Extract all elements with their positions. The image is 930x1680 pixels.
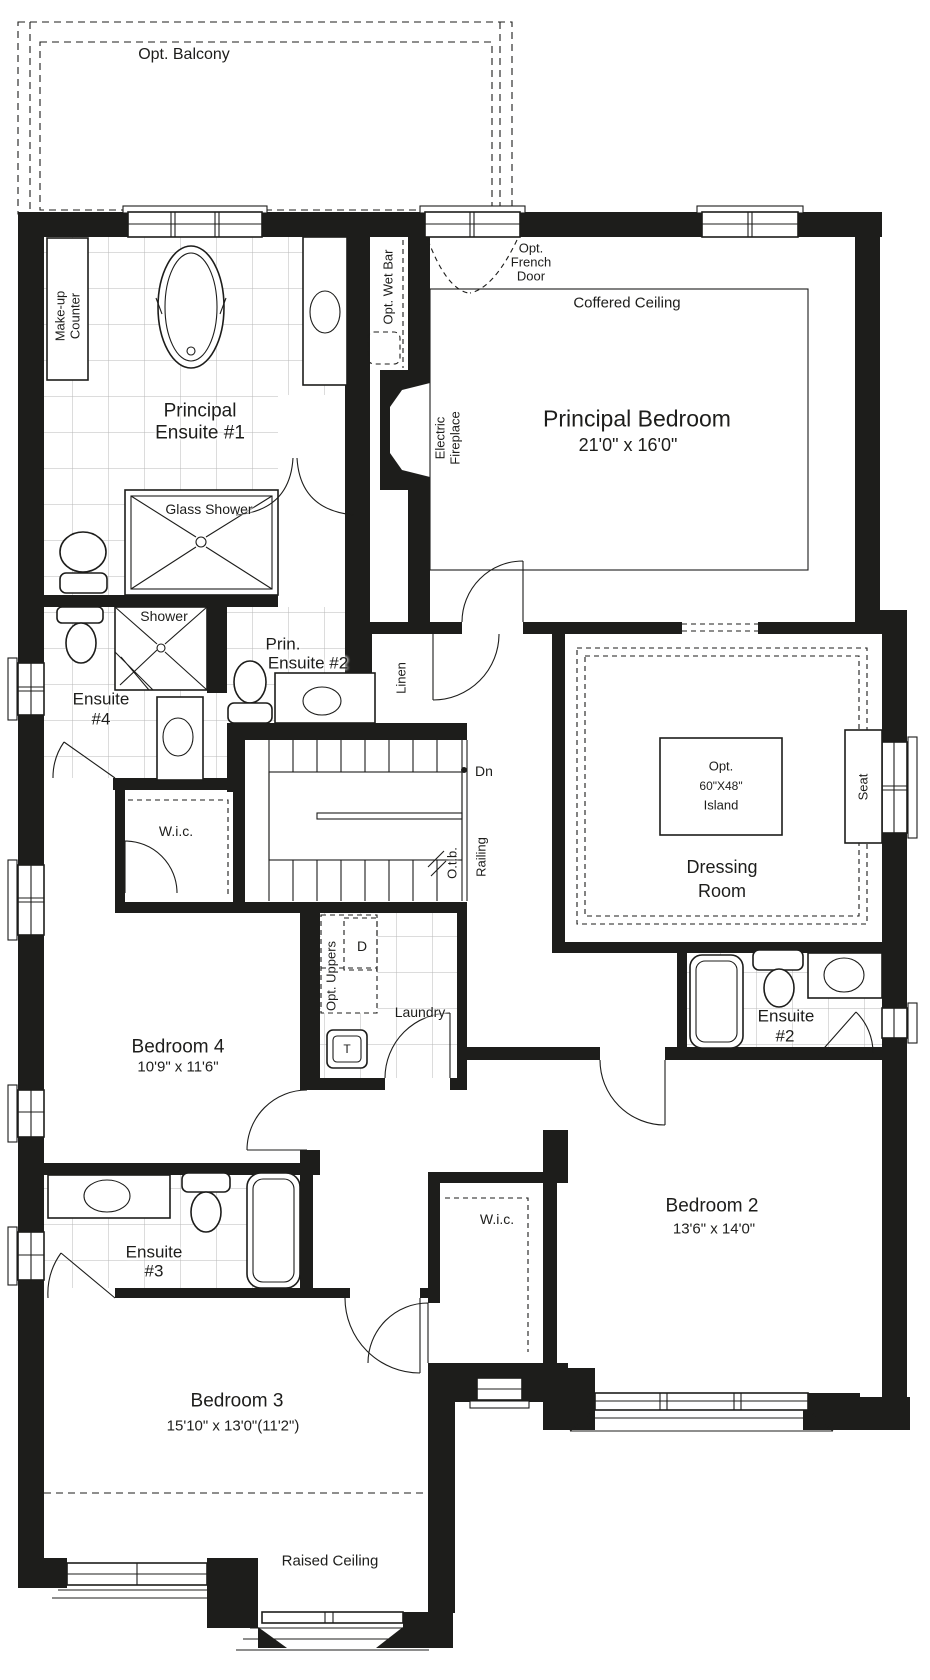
bathtub: [690, 955, 743, 1048]
label-opt-island-line2: 60"X48": [699, 780, 742, 792]
label-prin-ensuite2-line1: Prin.: [266, 636, 301, 653]
label-opt-french-door-line1: Opt.: [519, 242, 544, 255]
label-opt-french-door-line2: French: [511, 256, 551, 269]
label-ensuite3-line2: #3: [145, 1263, 164, 1280]
label-opt-balcony: Opt. Balcony: [138, 47, 230, 63]
label-principal-ensuite1-line1: Principal: [164, 402, 237, 421]
label-coffered-ceiling: Coffered Ceiling: [573, 296, 680, 311]
french-door-swing: [428, 240, 517, 293]
label-makeup-counter-line1: Make-up: [54, 291, 67, 342]
toilet: [60, 532, 107, 593]
label-electric-fireplace-line2: Fireplace: [449, 411, 462, 464]
label-principal-bedroom: Principal Bedroom: [543, 408, 731, 431]
floor-plan-drawing: [0, 0, 930, 1680]
label-bedroom2: Bedroom 2: [666, 1197, 759, 1216]
label-railing: Railing: [475, 837, 488, 877]
vanity-sink: [48, 1175, 170, 1218]
label-laundry-tub: T: [343, 1043, 350, 1055]
label-bedroom3-dims: 15'10" x 13'0"(11'2"): [167, 1419, 300, 1434]
label-opt-uppers: Opt. Uppers: [325, 941, 338, 1011]
label-otb: O.t.b.: [446, 847, 459, 879]
floor-plan: Opt. Balcony Make-up Counter Principal E…: [0, 0, 930, 1680]
label-wic-lower: W.i.c.: [480, 1212, 514, 1226]
label-dressing-room-line2: Room: [698, 882, 746, 900]
label-glass-shower: Glass Shower: [165, 502, 252, 516]
label-laundry: Laundry: [395, 1005, 446, 1019]
label-opt-wet-bar: Opt. Wet Bar: [382, 250, 395, 325]
label-opt-french-door-line3: Door: [517, 270, 545, 283]
label-ensuite4-line1: Ensuite: [73, 691, 130, 708]
label-shower: Shower: [140, 609, 187, 623]
vanity-sink: [275, 673, 375, 723]
label-opt-island-line3: Island: [704, 799, 739, 812]
label-ensuite2-line2: #2: [776, 1028, 795, 1045]
label-electric-fireplace-line1: Electric: [434, 417, 447, 460]
balcony-outline: [18, 22, 512, 214]
label-dryer: D: [357, 939, 367, 953]
label-linen: Linen: [395, 662, 408, 694]
label-bedroom4-dims: 10'9" x 11'6": [137, 1060, 218, 1075]
label-opt-island-line1: Opt.: [709, 760, 734, 773]
label-dressing-room-line1: Dressing: [686, 858, 757, 876]
fireplace: [380, 370, 430, 490]
stairs: [269, 740, 467, 901]
vanity-sink: [303, 237, 347, 385]
label-ensuite4-line2: #4: [92, 711, 111, 728]
vanity-sink: [808, 953, 882, 998]
label-wic-upper: W.i.c.: [159, 824, 193, 838]
label-stairs-dn: Dn: [475, 764, 493, 778]
vanity-sink: [157, 697, 203, 780]
label-ensuite2-line1: Ensuite: [758, 1008, 815, 1025]
label-bedroom4: Bedroom 4: [132, 1038, 225, 1057]
dressing-cased-opening: [682, 624, 758, 631]
label-prin-ensuite2-line2: Ensuite #2: [268, 655, 348, 672]
label-seat: Seat: [857, 774, 870, 801]
label-principal-ensuite1-line2: Ensuite #1: [155, 424, 245, 443]
label-principal-bedroom-dims: 21'0" x 16'0": [579, 436, 678, 454]
label-bedroom2-dims: 13'6" x 14'0": [673, 1222, 755, 1237]
bathtub: [247, 1173, 300, 1288]
label-bedroom3: Bedroom 3: [191, 1392, 284, 1411]
label-ensuite3-line1: Ensuite: [126, 1244, 183, 1261]
label-makeup-counter-line2: Counter: [69, 293, 82, 339]
label-raised-ceiling: Raised Ceiling: [282, 1554, 379, 1569]
